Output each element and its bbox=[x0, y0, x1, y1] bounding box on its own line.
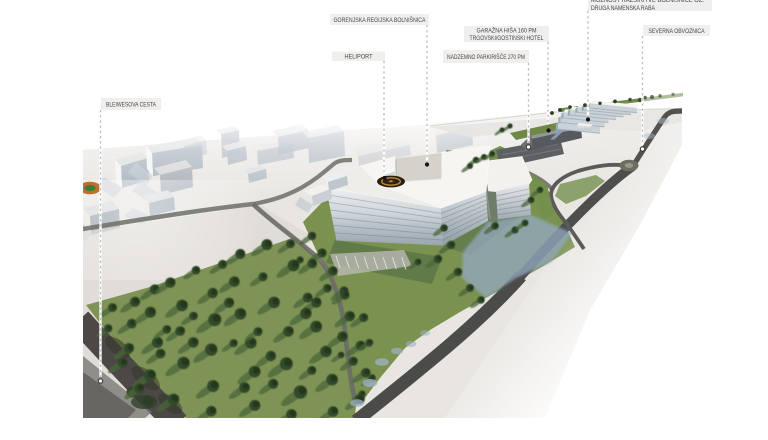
svg-text:BLEIWESOVA CESTA: BLEIWESOVA CESTA bbox=[106, 101, 156, 108]
svg-text:TRGOVSKI/GOSTINSKI HOTEL: TRGOVSKI/GOSTINSKI HOTEL bbox=[470, 35, 544, 42]
svg-text:NADZEMNO PARKIRIŠČE 270 PM: NADZEMNO PARKIRIŠČE 270 PM bbox=[447, 52, 525, 61]
svg-text:DRUGA NAMENSKA RABA: DRUGA NAMENSKA RABA bbox=[591, 5, 655, 12]
svg-text:SEVERNA OBVOZNICA: SEVERNA OBVOZNICA bbox=[649, 28, 705, 35]
svg-text:GARAŽNA HIŠA 160 PM: GARAŽNA HIŠA 160 PM bbox=[477, 26, 537, 35]
svg-text:GORENJSKA REGIJSKA BOLNIŠNICA: GORENJSKA REGIJSKA BOLNIŠNICA bbox=[334, 15, 426, 24]
svg-text:HELIPORT: HELIPORT bbox=[345, 54, 373, 61]
svg-text:MOŽNOST RAZŠIRITVE BOLNIŠNICE: MOŽNOST RAZŠIRITVE BOLNIŠNICE OZ. bbox=[591, 0, 704, 4]
